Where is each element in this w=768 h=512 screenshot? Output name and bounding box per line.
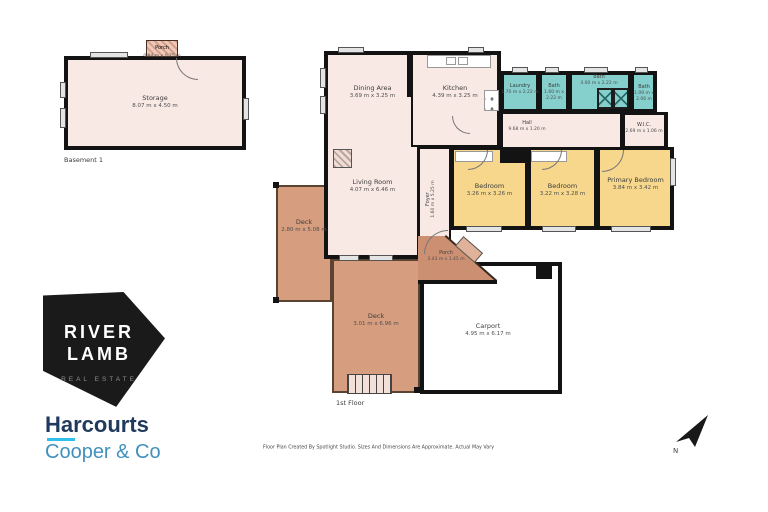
- carport-marker: [536, 266, 552, 279]
- bedroom2-label: Bedroom3.22 m x 3.28 m: [530, 182, 595, 198]
- sink: [458, 57, 468, 65]
- window: [584, 67, 608, 73]
- foyer-label: Foyer1.60 m x 5.25 m: [425, 162, 443, 236]
- bath3-label: Bath1.09 m x 2.06 m: [629, 84, 659, 103]
- storage-label: Storage 8.07 m x 4.50 m: [105, 94, 205, 110]
- window: [611, 226, 651, 232]
- window: [60, 82, 66, 98]
- window: [542, 226, 576, 232]
- sink: [446, 57, 456, 65]
- window: [466, 226, 502, 232]
- window: [338, 47, 364, 53]
- basement-porch-dims: 0.94 m x 0.75 m: [128, 53, 196, 60]
- harcourts-wordmark: Harcourts: [45, 412, 149, 438]
- hall-label: Hall9.68 m x 1.20 m: [498, 120, 556, 133]
- bath1-label: Bath1.60 m x 2.22 m: [539, 83, 569, 102]
- shower: [613, 88, 629, 109]
- window: [545, 67, 559, 73]
- bath2-label: Bath4.00 m x 2.22 m: [569, 74, 629, 87]
- dining-label: Dining Area3.69 m x 3.25 m: [326, 84, 419, 100]
- north-arrow-icon: N: [672, 413, 716, 455]
- window: [90, 52, 128, 58]
- window: [339, 255, 359, 261]
- window: [60, 108, 66, 128]
- deck-post: [414, 387, 420, 393]
- living-label: Living Room4.07 m x 6.46 m: [326, 178, 419, 194]
- basement-floor-label: Basement 1: [64, 156, 103, 164]
- window: [369, 255, 393, 261]
- kitchen-label: Kitchen4.39 m x 3.25 m: [413, 84, 497, 100]
- first-floor-label: 1st Floor: [336, 399, 364, 407]
- riverlamb-logo: RIVER LAMB REAL ESTATE: [43, 292, 165, 408]
- window: [512, 67, 528, 73]
- deck-post: [273, 297, 279, 303]
- wardrobe-block: [500, 149, 526, 163]
- riverlamb-line1: RIVER: [51, 322, 147, 343]
- disclaimer-text: Floor Plan Created By Spotlight Studio. …: [263, 445, 494, 451]
- floorplan-canvas: Porch 0.94 m x 0.75 m Storage 8.07 m x 4…: [0, 0, 768, 512]
- shower: [597, 88, 613, 109]
- carport-label: Carport4.95 m x 6.17 m: [448, 322, 528, 338]
- compass-north-icon: N: [672, 413, 716, 459]
- window: [468, 47, 484, 53]
- deck-post: [273, 182, 279, 188]
- deck-bottom-label: Deck3.01 m x 6.96 m: [334, 312, 418, 328]
- riverlamb-line2: LAMB: [51, 344, 147, 365]
- bedroom1-label: Bedroom3.26 m x 3.26 m: [453, 182, 526, 198]
- fireplace: [333, 149, 352, 168]
- compass-n-label: N: [673, 447, 678, 455]
- deck-stairs: [347, 374, 392, 394]
- wall-segment: [418, 280, 497, 284]
- wic-label: W.I.C.2.69 m x 1.06 m: [620, 122, 668, 135]
- deck-left-label: Deck2.80 m x 5.08 m: [278, 218, 330, 234]
- laundry-label: Laundry1.70 m x 2.22 m: [501, 83, 539, 96]
- primary-bedroom-label: Primary Bedroom3.84 m x 3.42 m: [599, 176, 672, 192]
- porch-label: Porch3.43 m x 1.45 m: [420, 250, 472, 263]
- window: [243, 98, 249, 120]
- riverlamb-line3: REAL ESTATE: [51, 376, 147, 383]
- window: [635, 67, 648, 73]
- harcourts-subbrand: Cooper & Co: [45, 441, 161, 464]
